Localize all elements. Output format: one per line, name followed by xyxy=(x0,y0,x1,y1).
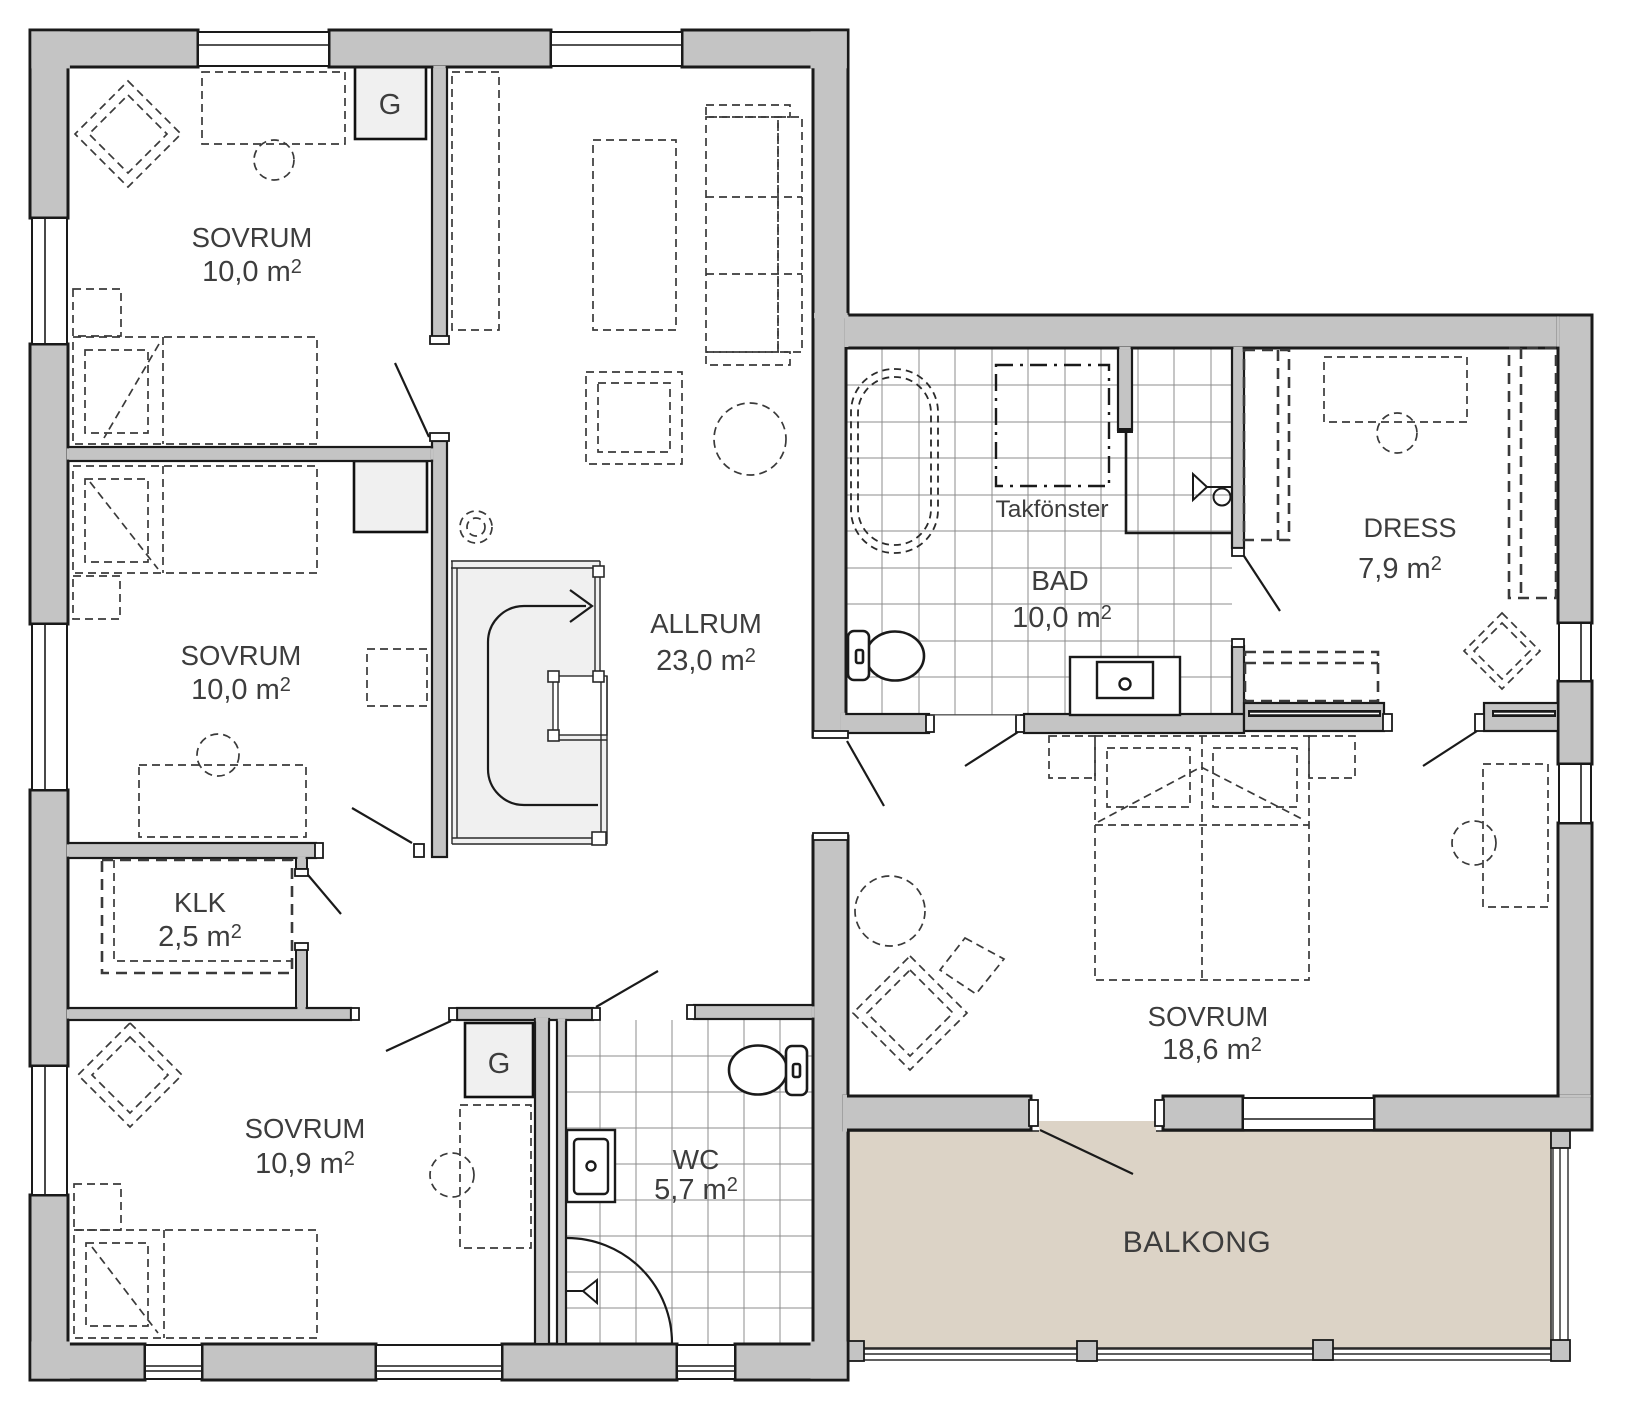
svg-text:WC: WC xyxy=(673,1144,720,1175)
svg-text:SOVRUM: SOVRUM xyxy=(192,222,313,253)
svg-text:5,7 m2: 5,7 m2 xyxy=(654,1174,738,1206)
svg-text:G: G xyxy=(379,89,402,121)
svg-text:23,0 m2: 23,0 m2 xyxy=(656,645,756,677)
svg-text:DRESS: DRESS xyxy=(1363,513,1456,543)
svg-text:18,6 m2: 18,6 m2 xyxy=(1162,1034,1262,1066)
svg-text:2,5 m2: 2,5 m2 xyxy=(158,921,242,953)
svg-text:10,0 m2: 10,0 m2 xyxy=(1012,602,1112,634)
svg-text:10,9 m2: 10,9 m2 xyxy=(255,1148,355,1180)
svg-text:BAD: BAD xyxy=(1031,565,1089,596)
svg-text:ALLRUM: ALLRUM xyxy=(650,608,762,639)
svg-text:BALKONG: BALKONG xyxy=(1123,1226,1272,1259)
svg-text:10,0 m2: 10,0 m2 xyxy=(191,674,291,706)
svg-text:SOVRUM: SOVRUM xyxy=(1148,1001,1269,1032)
svg-text:G: G xyxy=(488,1048,511,1080)
svg-text:10,0 m2: 10,0 m2 xyxy=(202,256,302,288)
svg-text:SOVRUM: SOVRUM xyxy=(181,640,302,671)
svg-text:Takfönster: Takfönster xyxy=(995,496,1108,523)
svg-text:7,9 m2: 7,9 m2 xyxy=(1358,553,1442,585)
svg-text:KLK: KLK xyxy=(174,887,227,918)
svg-text:SOVRUM: SOVRUM xyxy=(245,1113,366,1144)
